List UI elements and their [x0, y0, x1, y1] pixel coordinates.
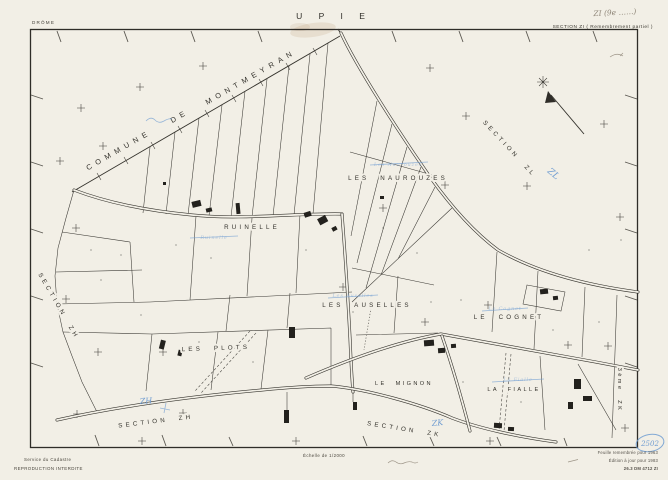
label-ruinelle: RUINELLE: [224, 224, 280, 231]
north-arrow-icon: [537, 76, 584, 134]
blue-note-zk: ZK: [430, 418, 444, 428]
label-3eme-zk-east: 3ème ZK: [616, 368, 622, 413]
label-le-mignon: LE MIGNON: [375, 381, 433, 387]
label-le-cognet: LE COGNET: [474, 314, 545, 321]
label-commune: COMMUNE: [84, 127, 153, 172]
blue-note-zl: ZL: [544, 166, 561, 182]
frame-ticks: [31, 31, 637, 446]
pencil-note-section: ZI (9e ……): [592, 7, 636, 18]
label-section-zh-south: SECTION ZH: [118, 413, 194, 429]
map-labels: COMMUNE DE MONTMEYRAN SECTION ZL LES NAU…: [36, 47, 622, 439]
label-les-auselles: LES AUSELLES: [322, 302, 411, 309]
blue-note-ruinelle: Ruinelle: [199, 235, 227, 241]
label-montmeyran: MONTMEYRAN: [204, 47, 298, 106]
label-la-fialle: LA FIALLE: [487, 387, 540, 393]
parcel-lines: [55, 43, 622, 438]
edition-line-2: Édition à jour pour 1983: [609, 458, 659, 463]
pencil-scribbles: [388, 53, 623, 464]
department-label: DRÔME: [32, 19, 55, 25]
reproduction-notice: REPRODUCTION INTERDITE: [14, 466, 83, 471]
margin-texts: DRÔME U P I E SECTION ZI ( Remembrement …: [14, 11, 658, 471]
pencil-annotations: ZI (9e ……): [388, 7, 637, 464]
label-commune-de: DE: [169, 107, 191, 125]
commune-boundary: [72, 29, 341, 192]
edition-line-1: Feuille remembrée pour 1963: [598, 450, 659, 455]
roads: [57, 33, 638, 442]
label-les-naurouzes: LES NAUROUZES: [348, 175, 448, 182]
label-section-zh-west: SECTION ZH: [36, 272, 80, 341]
label-les-plots: LES PLOTS: [182, 344, 251, 353]
blue-note-zh: ZH: [139, 396, 154, 406]
label-section-zl: SECTION ZL: [481, 119, 537, 178]
blue-annotations: ZL ZH ZK Ruinelle Les Naurouzes Les Ause…: [139, 118, 666, 454]
section-header: SECTION ZI ( Remembrement partiel ): [553, 24, 653, 30]
sheet-title: U P I E: [296, 11, 372, 21]
scale-label: Échelle de 1/2000: [303, 453, 345, 458]
label-section-zk-south: SECTION ZK: [367, 420, 442, 439]
edition-line-3: 26.3 DM 4712 ZI: [624, 466, 658, 471]
cadastral-map-sheet: COMMUNE DE MONTMEYRAN SECTION ZL LES NAU…: [0, 0, 668, 480]
service-label: Service du Cadastre: [24, 457, 72, 462]
blue-reference-number: 2502: [640, 440, 659, 448]
